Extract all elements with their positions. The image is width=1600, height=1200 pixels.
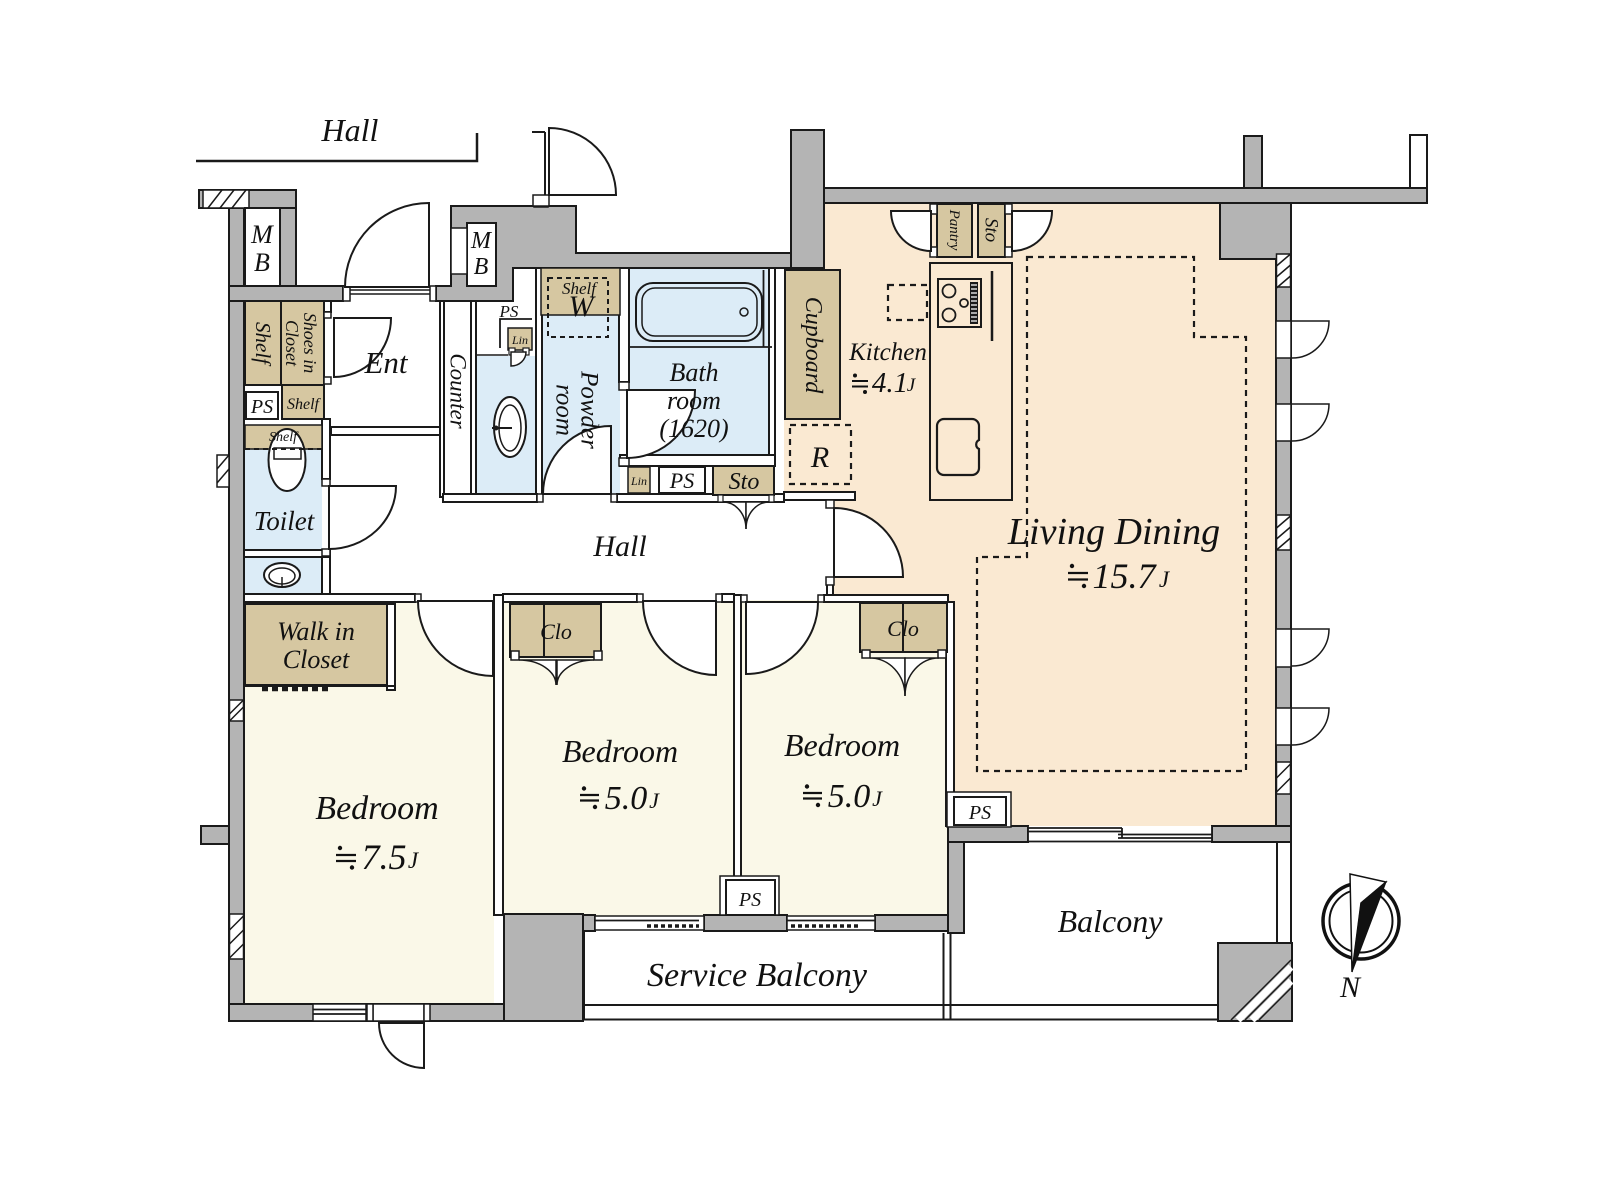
svg-text:Bedroom: Bedroom: [784, 727, 900, 763]
svg-text:Clo: Clo: [887, 616, 919, 641]
svg-text:Service Balcony: Service Balcony: [647, 957, 868, 994]
svg-text:J: J: [649, 788, 660, 813]
svg-text:(1620): (1620): [659, 414, 728, 443]
svg-text:Shoes in: Shoes in: [300, 313, 320, 374]
svg-text:N: N: [1339, 971, 1362, 1004]
svg-text:Ent: Ent: [363, 345, 408, 380]
svg-text:Walk in: Walk in: [277, 617, 355, 646]
svg-text:Hall: Hall: [592, 530, 646, 563]
svg-text:5.0: 5.0: [828, 778, 871, 815]
svg-text:Clo: Clo: [540, 619, 572, 644]
svg-text:R: R: [810, 441, 829, 474]
svg-text:Closet: Closet: [282, 320, 302, 367]
svg-text:Living Dining: Living Dining: [1007, 511, 1220, 553]
svg-text:Sto: Sto: [729, 469, 760, 495]
svg-text:Cupboard: Cupboard: [800, 297, 826, 394]
svg-text:Shelf: Shelf: [287, 396, 322, 413]
svg-text:J: J: [872, 786, 883, 811]
svg-text:J: J: [408, 848, 420, 873]
svg-text:Bedroom: Bedroom: [562, 733, 678, 769]
svg-text:Bedroom: Bedroom: [315, 790, 438, 827]
svg-text:Counter: Counter: [446, 353, 471, 429]
svg-text:room: room: [551, 384, 578, 436]
svg-text:Bath: Bath: [669, 358, 718, 387]
svg-text:B: B: [254, 248, 270, 277]
svg-text:B: B: [474, 254, 489, 280]
svg-text:Lin: Lin: [630, 474, 647, 488]
svg-text:PS: PS: [669, 468, 694, 493]
svg-text:4.1: 4.1: [872, 367, 908, 399]
svg-text:W: W: [569, 290, 597, 323]
svg-text:PS: PS: [968, 802, 991, 824]
svg-text:PS: PS: [250, 396, 273, 418]
svg-text:Balcony: Balcony: [1058, 903, 1164, 939]
svg-text:Toilet: Toilet: [254, 506, 316, 536]
svg-text:5.0: 5.0: [605, 780, 648, 817]
svg-text:Kitchen: Kitchen: [848, 339, 927, 366]
svg-text:PS: PS: [738, 889, 761, 911]
svg-text:Lin: Lin: [511, 333, 528, 347]
svg-text:J: J: [1159, 567, 1171, 592]
svg-text:7.5: 7.5: [362, 837, 407, 877]
svg-text:15.7: 15.7: [1093, 556, 1158, 596]
svg-text:M: M: [250, 220, 274, 249]
svg-text:M: M: [470, 228, 493, 254]
svg-text:Hall: Hall: [321, 112, 379, 148]
svg-text:Powder: Powder: [576, 370, 603, 449]
svg-text:PS: PS: [499, 302, 519, 321]
svg-text:Closet: Closet: [283, 645, 350, 674]
svg-text:Sto: Sto: [981, 218, 1002, 242]
svg-text:Pantry: Pantry: [946, 209, 962, 251]
svg-text:Shelf: Shelf: [251, 322, 275, 367]
svg-text:Shelf: Shelf: [269, 430, 299, 445]
svg-text:room: room: [667, 386, 721, 415]
